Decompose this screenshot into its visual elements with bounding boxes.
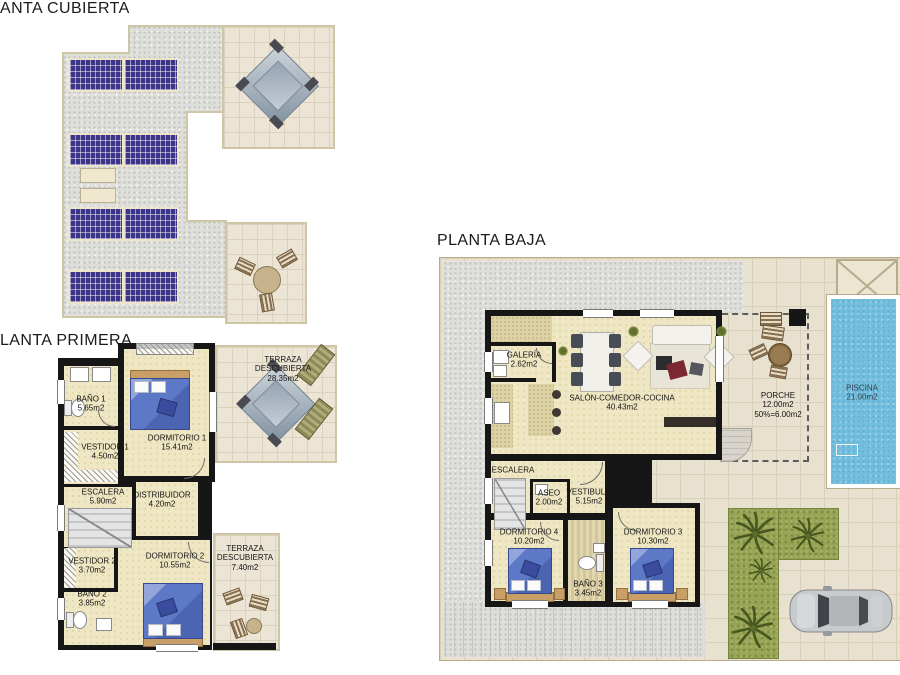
window	[156, 644, 198, 652]
sink-icon	[70, 367, 89, 382]
toilet-icon	[73, 611, 87, 629]
porch-column	[789, 309, 806, 326]
window	[632, 600, 668, 609]
palm-tree-icon	[731, 606, 775, 650]
chair-icon	[571, 334, 583, 348]
chair-icon	[609, 334, 621, 348]
palm-tree-icon	[748, 558, 774, 584]
window	[484, 398, 493, 424]
stool-icon	[552, 390, 561, 399]
sink-icon	[494, 402, 510, 424]
room-label: PORCHE12.00m250%=6.00m2	[754, 391, 801, 419]
chair-icon	[609, 372, 621, 386]
gravel-driveway	[443, 602, 705, 657]
room-label: TERRAZADESCUBIERTA28.35m2	[255, 355, 311, 383]
window	[57, 598, 65, 620]
window	[715, 336, 724, 382]
chair-icon	[571, 372, 583, 386]
palm-tree-icon	[790, 518, 826, 554]
room-label: SALÓN-COMEDOR-COCINA40.43m2	[569, 394, 674, 413]
window-blind-icon	[136, 343, 194, 355]
pillow-icon	[151, 381, 166, 393]
room-label: ESCALERA	[492, 465, 535, 474]
solar-panel	[123, 270, 179, 304]
room-label: ESCALERA5.90m2	[82, 488, 125, 507]
kitchen-island	[528, 384, 554, 436]
car-icon	[787, 583, 895, 639]
room-label: DORMITORIO 210.55m2	[146, 552, 205, 571]
solar-panel	[68, 133, 124, 167]
roof-plan-title: ANTA CUBIERTA	[0, 0, 130, 18]
room-label: DISTRIBUIDOR4.20m2	[133, 491, 190, 510]
pillow-icon	[649, 580, 663, 591]
pillow-icon	[527, 580, 541, 591]
window	[583, 309, 613, 318]
gravel-strip	[443, 261, 743, 313]
entry-mat	[491, 316, 552, 342]
first-floor-title: LANTA PRIMERA	[0, 332, 132, 350]
room-label: ASEO2.00m2	[536, 489, 563, 508]
wall	[491, 378, 536, 382]
window	[512, 600, 548, 609]
toilet-icon	[578, 556, 596, 570]
skylight	[80, 188, 116, 203]
wall	[552, 342, 556, 382]
skylight	[80, 168, 116, 183]
room-label: DORMITORIO 410.20m2	[500, 528, 559, 547]
room-label: DORMITORIO 115.41m2	[148, 434, 207, 453]
table-icon	[253, 266, 281, 294]
solar-panel	[68, 58, 124, 92]
nightstand-icon	[554, 588, 565, 600]
table-icon	[768, 343, 792, 367]
pillow-icon	[134, 381, 149, 393]
room-label: TERRAZADESCUBIERTA7.40m2	[217, 544, 273, 572]
window	[57, 505, 65, 531]
stool-icon	[552, 408, 561, 417]
stairs-icon	[68, 508, 132, 548]
room-label: DORMITORIO 310.30m2	[624, 528, 683, 547]
stool-icon	[552, 426, 561, 435]
window	[484, 540, 493, 566]
wall	[213, 643, 276, 650]
nightstand-icon	[676, 588, 688, 600]
table-icon	[246, 618, 262, 634]
palm-tree-icon	[733, 512, 777, 556]
room-label: GALERÍA2.62m2	[507, 351, 542, 370]
solar-panel	[123, 58, 179, 92]
plant-icon	[628, 326, 639, 337]
gravel-strip	[443, 261, 487, 605]
solar-panel	[123, 133, 179, 167]
room-label: BAÑO 23.85m2	[77, 590, 106, 609]
window	[640, 309, 674, 318]
solar-panel	[123, 207, 179, 241]
appliance-icon	[493, 365, 507, 377]
chair-icon	[761, 325, 785, 342]
pillow-icon	[633, 580, 647, 591]
tv-bench-icon	[664, 417, 716, 427]
room-label: PISCINA21.00m2	[846, 384, 878, 403]
chair-icon	[609, 353, 621, 367]
wall	[491, 342, 556, 346]
toilet-tank-icon	[596, 554, 604, 572]
pillow-icon	[166, 624, 181, 636]
plant-icon	[558, 346, 568, 356]
ground-floor-title: PLANTA BAJA	[437, 232, 546, 250]
pillow-icon	[511, 580, 525, 591]
window	[57, 380, 65, 404]
nightstand-icon	[494, 588, 506, 600]
solar-panel	[68, 207, 124, 241]
room-label: VESTIBULO5.15m2	[567, 488, 612, 507]
chair-icon	[571, 353, 583, 367]
solar-panel	[68, 270, 124, 304]
stairs-icon	[494, 478, 526, 530]
sink-icon	[92, 367, 111, 382]
sink-icon	[593, 543, 605, 553]
room-label: VESTIDOR 23.70m2	[68, 557, 116, 576]
sofa-icon	[652, 325, 712, 345]
pool-step	[836, 444, 858, 456]
pillow-icon	[148, 624, 163, 636]
nightstand-icon	[616, 588, 628, 600]
floorplan-sheet: ANTA CUBIERTA LANTA PRIMERA TERRAZADESCU…	[0, 0, 900, 675]
sink-icon	[96, 618, 112, 631]
terrace-door	[209, 392, 217, 432]
room-label: BAÑO 33.45m2	[573, 580, 602, 599]
room-label: BAÑO 15.65m2	[76, 395, 105, 414]
window	[484, 352, 493, 372]
room-label: VESTIDOR 14.50m2	[81, 443, 129, 462]
side-table-icon	[689, 362, 704, 376]
window	[484, 478, 493, 504]
wardrobe-icon	[64, 470, 118, 482]
